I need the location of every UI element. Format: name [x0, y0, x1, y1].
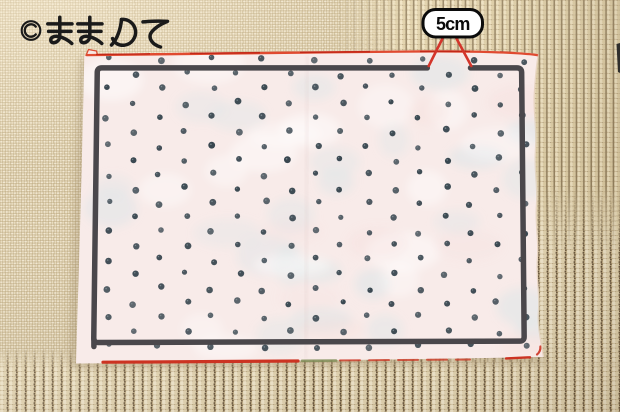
svg-text:5cm: 5cm [436, 14, 470, 34]
